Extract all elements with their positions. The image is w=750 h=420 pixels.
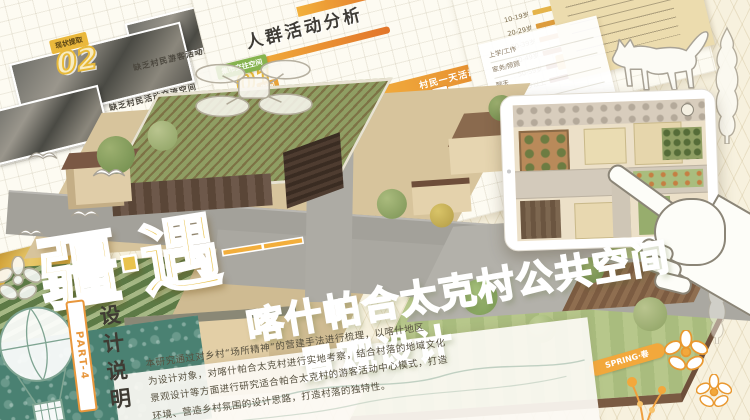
spring-corner-art: SPRING·春 bbox=[580, 330, 750, 420]
spring-plant-doodle bbox=[614, 370, 674, 420]
spring-flower-doodle bbox=[664, 330, 708, 374]
spring-flower-doodle bbox=[696, 374, 732, 410]
daisy-sketch-icon bbox=[0, 256, 42, 304]
bird-icon bbox=[92, 164, 126, 180]
hero-title-dash: —— bbox=[216, 211, 303, 277]
bird-icon bbox=[28, 148, 58, 162]
drone-sketch-icon bbox=[192, 52, 314, 128]
cat-silhouette bbox=[608, 22, 716, 96]
plan-dark-court bbox=[520, 200, 561, 239]
bird-icon bbox=[70, 206, 100, 220]
tablet-camera-dot bbox=[507, 169, 511, 173]
poster-canvas: 02 村区中建筑旁村民的活动区域少 静态活动空间，村民互动不全面 缺乏村民游客活… bbox=[0, 0, 750, 420]
